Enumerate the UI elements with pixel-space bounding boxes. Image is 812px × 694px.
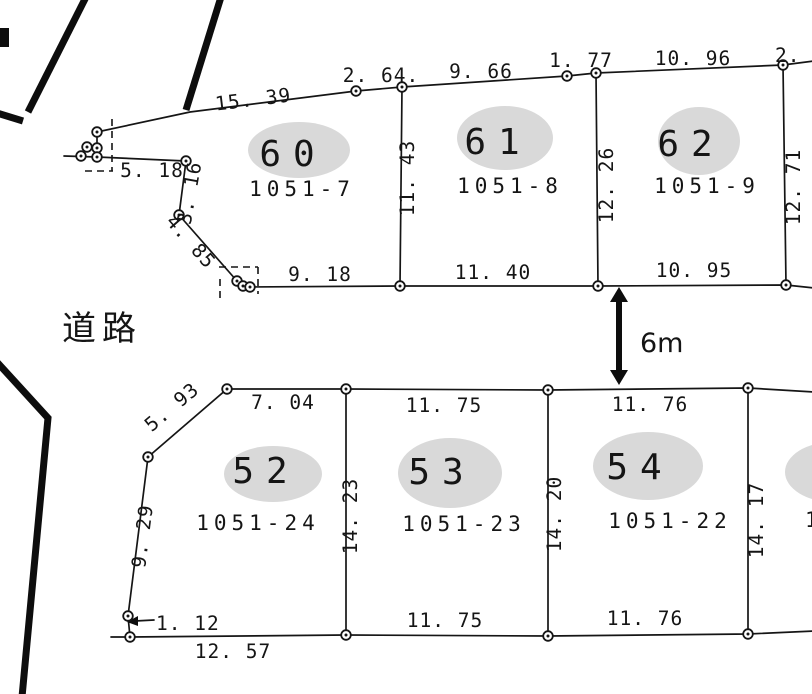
dim-label: 1. 77: [549, 49, 613, 72]
road-line-left-stub: [0, 113, 23, 121]
survey-point: [125, 632, 135, 642]
survey-point: [341, 630, 351, 640]
parcel-lot: 1051-7: [249, 177, 355, 201]
cadastral-map: 15. 39 2. 64. 9. 66 1. 77 10. 96 2. 0 5.…: [0, 0, 812, 694]
dim-label: 5. 18: [120, 159, 184, 182]
parcel-partial-right-ellipse: [785, 442, 812, 502]
survey-point: [781, 280, 791, 290]
survey-point: [341, 384, 351, 394]
road-label: 道路: [62, 309, 142, 349]
dim-label: 12. 57: [195, 640, 271, 663]
lower-parcel-ellipses: [224, 432, 812, 508]
survey-point: [562, 71, 572, 81]
dim-label: 9. 29: [127, 503, 158, 569]
road-mark-left-edge: [0, 28, 9, 47]
dim-label: 15. 39: [214, 83, 293, 115]
survey-point: [82, 142, 92, 152]
survey-point: [395, 281, 405, 291]
dim-label: 5. 93: [140, 378, 204, 437]
survey-point: [92, 152, 102, 162]
dim-label: 9. 66: [449, 60, 513, 83]
dim-label: 2. 0: [775, 44, 812, 67]
survey-point: [543, 385, 553, 395]
parcel-lot-partial: 1: [805, 508, 812, 532]
dim-label: 11. 76: [607, 607, 683, 630]
road-line-top-left: [28, 0, 86, 112]
dim-label: 10. 95: [656, 259, 732, 282]
parcel-number: 62: [657, 124, 724, 165]
dim-label: 7. 04: [251, 391, 315, 414]
parcel-lot: 1051-8: [457, 174, 563, 198]
parcel-number: 52: [232, 451, 299, 492]
survey-point: [543, 631, 553, 641]
road-width-arrow: [610, 287, 628, 385]
survey-point: [92, 127, 102, 137]
parcel-number: 54: [606, 447, 673, 488]
dim-label: 10. 96: [655, 47, 731, 70]
arrow-head-up-icon: [610, 287, 628, 302]
survey-point: [143, 452, 153, 462]
parcel-number: 53: [408, 452, 475, 493]
dim-label: 9. 18: [288, 263, 352, 286]
survey-map-canvas: 15. 39 2. 64. 9. 66 1. 77 10. 96 2. 0 5.…: [0, 0, 812, 694]
parcel-lot: 1051-9: [654, 174, 760, 198]
dim-label: 2. 64.: [343, 64, 419, 87]
dim-label: 12. 71: [782, 149, 805, 225]
road-width-label: 6m: [640, 328, 683, 359]
parcel-lot: 1051-22: [608, 509, 732, 533]
survey-point: [743, 383, 753, 393]
parcel-lot: 1051-24: [196, 511, 320, 535]
survey-point: [123, 611, 133, 621]
road-line-bottom-left: [0, 361, 48, 694]
dim-label: 11. 75: [406, 394, 482, 417]
parcel-lot: 1051-23: [402, 512, 526, 536]
parcel-number: 61: [464, 122, 531, 163]
dim-label: 11. 43: [396, 140, 419, 216]
survey-point: [593, 281, 603, 291]
dim-label: 14. 17: [745, 482, 768, 558]
dim-label: 11. 76: [612, 393, 688, 416]
survey-point: [76, 151, 86, 161]
dim-label: 1. 12: [156, 612, 220, 635]
dim-label: 14. 20: [543, 476, 566, 552]
dim-label: 11. 40: [455, 261, 531, 284]
dim-label: 11. 75: [407, 609, 483, 632]
parcel-labels: 60 1051-7 61 1051-8 62 1051-9 52 1051-24…: [196, 122, 812, 536]
survey-point: [245, 282, 255, 292]
dim-label: 12. 26: [595, 147, 618, 223]
survey-point: [743, 629, 753, 639]
dim-label: 14. 23: [339, 478, 362, 554]
survey-point: [351, 86, 361, 96]
arrow-head-down-icon: [610, 370, 628, 385]
survey-point: [222, 384, 232, 394]
parcel-number: 60: [259, 134, 326, 175]
